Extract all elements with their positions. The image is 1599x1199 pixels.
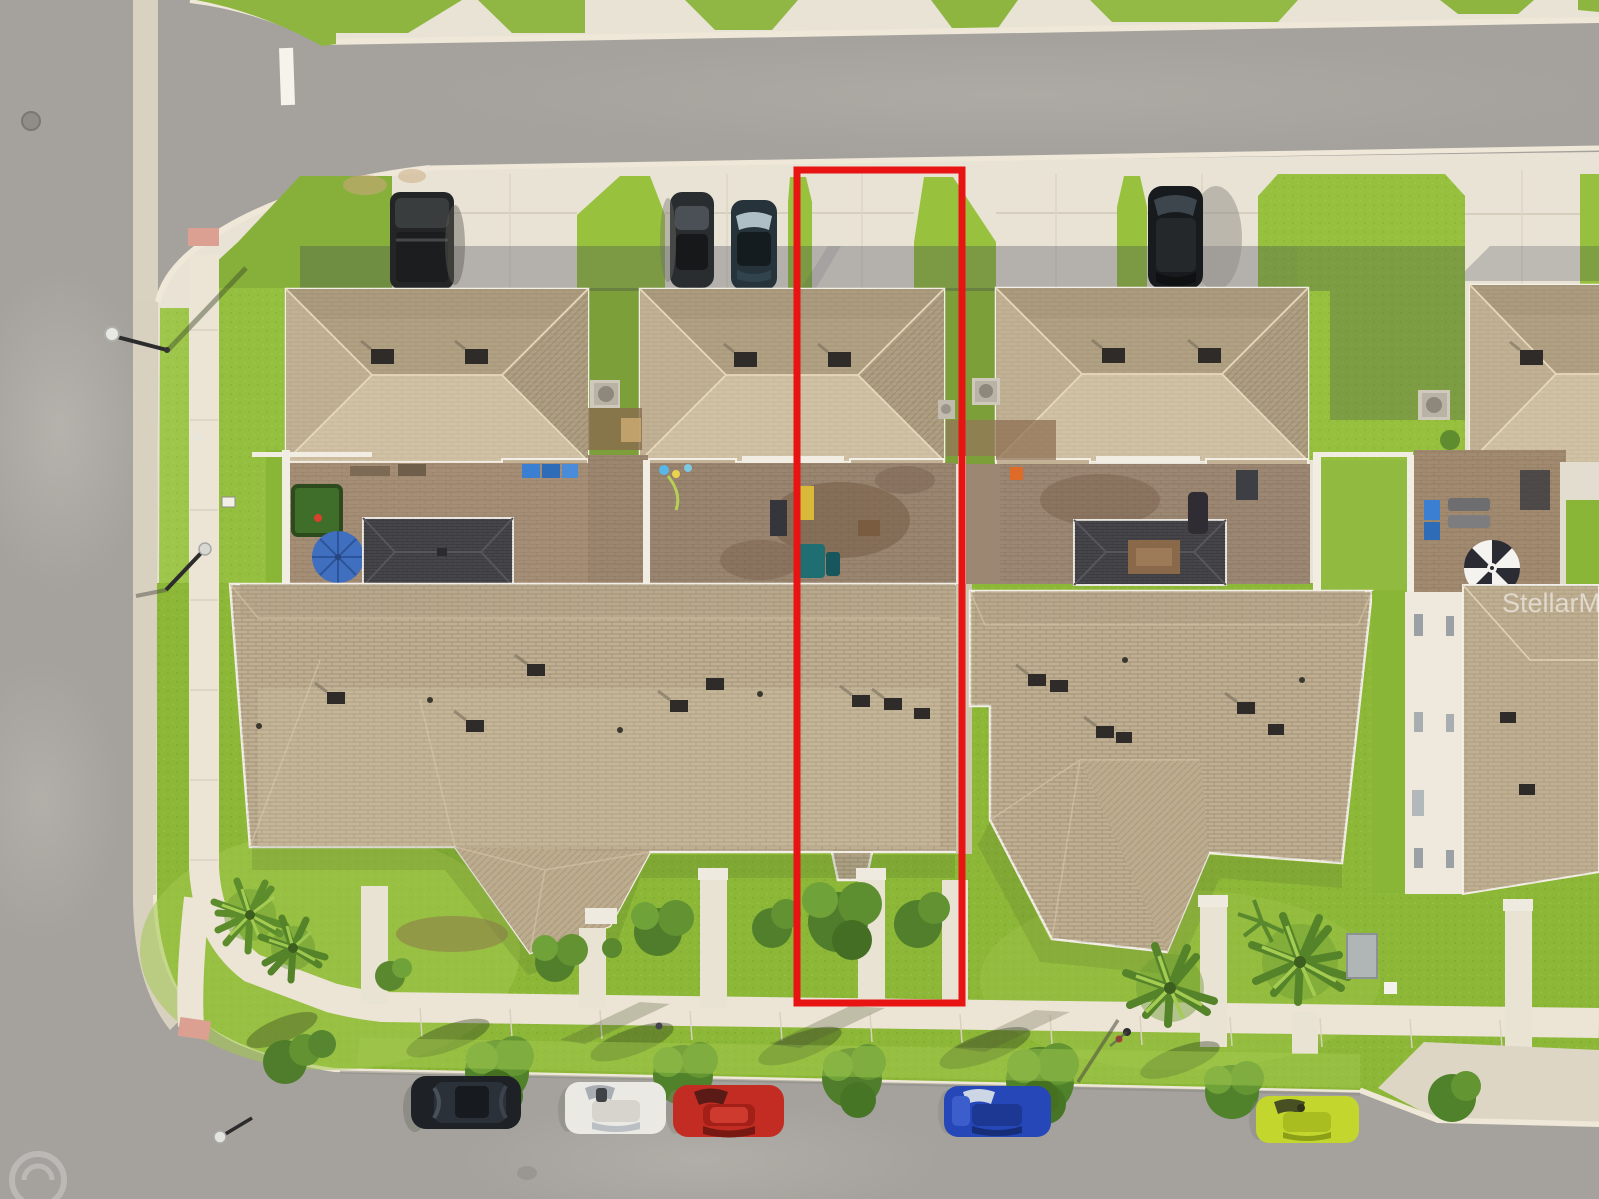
svg-text:StellarMLS: StellarMLS bbox=[1502, 588, 1599, 618]
